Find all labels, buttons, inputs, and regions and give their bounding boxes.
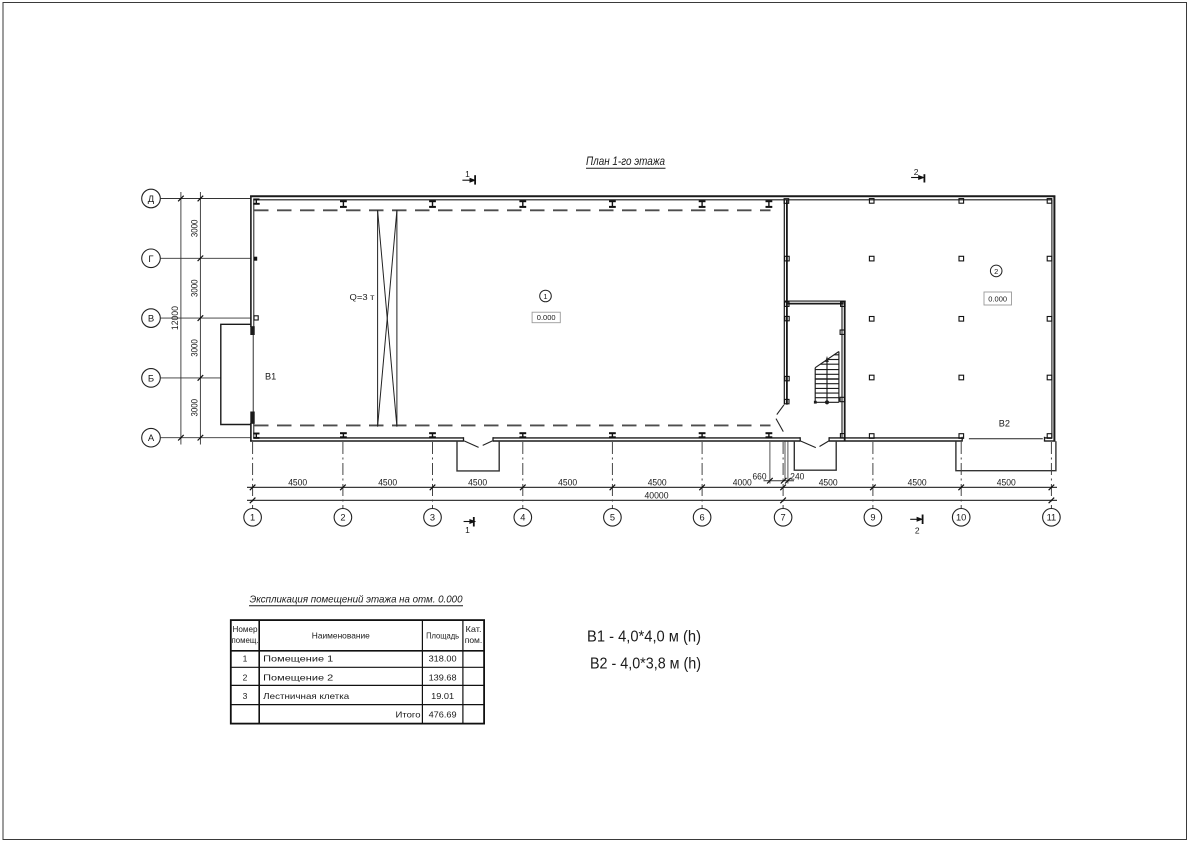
svg-text:660: 660 <box>753 471 767 481</box>
svg-text:Наименование: Наименование <box>312 631 370 640</box>
svg-text:4500: 4500 <box>378 477 397 487</box>
svg-text:4500: 4500 <box>908 477 927 487</box>
svg-text:4000: 4000 <box>733 477 752 487</box>
svg-text:4500: 4500 <box>558 477 577 487</box>
svg-text:Итого: Итого <box>396 710 421 720</box>
svg-text:4500: 4500 <box>997 477 1016 487</box>
svg-text:2: 2 <box>243 673 248 683</box>
svg-text:План 1-го этажа: План 1-го этажа <box>586 156 665 168</box>
svg-text:Номер: Номер <box>233 625 258 634</box>
svg-text:Г: Г <box>148 254 153 265</box>
svg-text:4500: 4500 <box>288 477 307 487</box>
svg-text:318.00: 318.00 <box>429 653 457 663</box>
svg-text:240: 240 <box>790 471 804 481</box>
svg-text:476.69: 476.69 <box>429 710 457 720</box>
svg-text:2: 2 <box>994 267 998 276</box>
svg-text:3: 3 <box>243 691 248 701</box>
svg-text:Q=3 т: Q=3 т <box>350 293 375 302</box>
svg-text:Помещение 1: Помещение 1 <box>263 653 333 663</box>
svg-text:пом.: пом. <box>465 636 483 645</box>
svg-text:Лестничная клетка: Лестничная клетка <box>263 691 349 701</box>
svg-text:Площадь: Площадь <box>426 631 459 640</box>
svg-text:В2: В2 <box>999 419 1010 429</box>
svg-text:4500: 4500 <box>648 477 667 487</box>
svg-text:1: 1 <box>243 653 248 663</box>
svg-text:0.000: 0.000 <box>537 313 556 322</box>
svg-text:1: 1 <box>543 292 547 301</box>
svg-text:9: 9 <box>870 513 875 523</box>
svg-text:3000: 3000 <box>190 220 200 238</box>
svg-text:2: 2 <box>915 525 920 535</box>
svg-text:1: 1 <box>465 169 470 179</box>
svg-text:Б: Б <box>148 373 154 384</box>
svg-text:0.000: 0.000 <box>988 295 1007 304</box>
svg-text:11: 11 <box>1047 513 1057 523</box>
svg-text:4: 4 <box>520 513 525 523</box>
svg-text:Кат.: Кат. <box>466 625 482 634</box>
svg-text:В2 - 4,0*3,8 м (h): В2 - 4,0*3,8 м (h) <box>590 656 701 673</box>
svg-text:12000: 12000 <box>170 306 180 330</box>
svg-text:Помещение 2: Помещение 2 <box>263 673 333 683</box>
svg-text:А: А <box>148 433 155 444</box>
svg-text:139.68: 139.68 <box>429 673 457 683</box>
svg-text:40000: 40000 <box>645 491 669 501</box>
svg-text:3000: 3000 <box>190 399 200 417</box>
svg-text:1: 1 <box>465 525 470 535</box>
svg-text:1: 1 <box>250 513 255 523</box>
svg-text:10: 10 <box>956 513 966 523</box>
svg-text:2: 2 <box>340 513 345 523</box>
svg-text:В1: В1 <box>265 372 276 382</box>
svg-text:3000: 3000 <box>190 279 200 297</box>
svg-text:3: 3 <box>430 513 435 523</box>
svg-text:7: 7 <box>781 513 786 523</box>
svg-text:В: В <box>148 314 154 325</box>
svg-text:3000: 3000 <box>190 339 200 357</box>
svg-text:2: 2 <box>914 167 919 177</box>
svg-text:19.01: 19.01 <box>431 691 454 701</box>
svg-text:Экспликация помещений этажа на: Экспликация помещений этажа на отм. 0.00… <box>250 595 463 606</box>
svg-text:6: 6 <box>700 513 705 523</box>
svg-text:4500: 4500 <box>819 477 838 487</box>
svg-text:Д: Д <box>148 194 155 205</box>
svg-text:4500: 4500 <box>468 477 487 487</box>
svg-text:В1 - 4,0*4,0 м (h): В1 - 4,0*4,0 м (h) <box>587 629 701 646</box>
svg-text:помещ.: помещ. <box>232 636 259 645</box>
svg-text:5: 5 <box>610 513 615 523</box>
